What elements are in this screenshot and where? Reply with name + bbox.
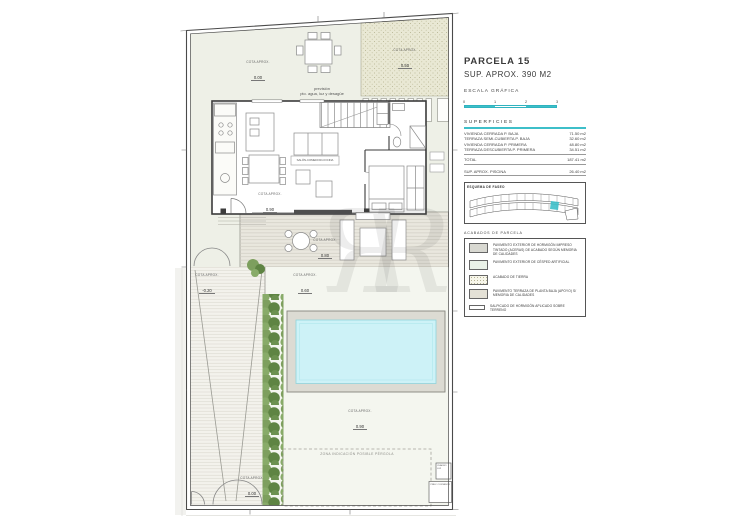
table-row: TERRAZA DESCUBIERTA P. PRIMERA 34.51 m2 <box>464 147 586 152</box>
kitchen-island <box>246 113 274 151</box>
kitchen <box>214 103 237 195</box>
cota-entrance: COTA APROX. 0.00 <box>232 477 272 500</box>
utilities-provision-note: previsión pto. agua, luz y desagüe <box>280 86 364 96</box>
driveway <box>191 267 266 506</box>
agency-watermark: RR <box>322 196 451 311</box>
table-row-pool: SUP. APROX. PISCINA 26.40 m2 <box>464 169 586 174</box>
site-map-title: ESQUEMA DE FASEO <box>467 185 505 189</box>
superficies-table: VIVIENDA CERRADA P. BAJA 71.50 m2 TERRAZ… <box>464 131 586 176</box>
salon-room-label: SALÓN-COMEDOR-COCINA <box>291 158 339 162</box>
superficies-title: SUPERFICIES <box>464 120 586 125</box>
acabados-title: ACABADOS DE PARCELA <box>464 231 586 235</box>
legend-item: PAVIMENTO TERRAZA DE PLANTA BAJA (APOYO)… <box>469 289 581 299</box>
table-row-total: TOTAL 187.41 m2 <box>464 157 586 162</box>
cota-house: COTA APROX. 0.90 <box>250 193 290 216</box>
legend-item: PAVIMENTO EXTERIOR DE CÉSPED ARTIFICIAL <box>469 260 581 270</box>
floor-plan-page: COTA APROX. 0.00 COTA APROX. 0.50 COTA A… <box>0 0 756 528</box>
legend-item: SALPICADO DE HORMIGÓN APLICADO SOBRE TER… <box>469 304 581 312</box>
graphic-scale-bar: 0 1 2 3 <box>464 100 557 110</box>
scale-title: ESCALA GRÁFICA <box>464 89 586 94</box>
superficies-accent-bar <box>464 127 586 130</box>
scale-tick-1: 1 <box>494 100 496 104</box>
site-location-map: ESQUEMA DE FASEO <box>464 182 586 224</box>
scale-tick-3: 3 <box>556 100 558 104</box>
cota-garden-mid: COTA APROX. 0.60 <box>285 274 325 297</box>
swatch-hormigon-impreso <box>469 243 488 253</box>
scale-tick-0: 0 <box>463 100 465 104</box>
cota-lawn-south: COTA APROX. 0.90 <box>340 410 380 433</box>
parcel-area: SUP. APROX. 390 M2 <box>464 70 586 79</box>
swatch-salpicado <box>469 305 485 311</box>
info-panel: PARCELA 15 SUP. APROX. 390 M2 ESCALA GRÁ… <box>464 56 586 317</box>
cota-tierra: COTA APROX. 0.50 <box>385 49 425 72</box>
cota-front-terrain: COTA APROX. 0.00 <box>238 61 278 84</box>
utility-box-bottom-label: PREV. CONTADOR <box>431 484 451 487</box>
finishes-legend: PAVIMENTO EXTERIOR DE HORMIGÓN IMPRESO T… <box>464 238 586 316</box>
cota-driveway: COTA APROX. -0.20 <box>187 274 227 297</box>
legend-item: ACABADO DE TIERRA <box>469 275 581 285</box>
pergola-zone-label: ZONA INDICACIÓN POSIBLE PÉRGOLA <box>285 452 429 456</box>
swatch-cesped-artificial <box>469 260 488 270</box>
pool <box>287 311 445 392</box>
utility-box-top-label: CUADRO LUZ <box>437 465 450 470</box>
highlighted-parcel <box>550 201 559 210</box>
scale-tick-2: 2 <box>525 100 527 104</box>
dining-table <box>243 155 286 185</box>
swatch-pavimento-terraza <box>469 289 488 299</box>
swatch-tierra <box>469 275 488 285</box>
legend-item: PAVIMENTO EXTERIOR DE HORMIGÓN IMPRESO T… <box>469 243 581 255</box>
site-map-drawing <box>465 189 583 223</box>
parcel-title: PARCELA 15 <box>464 56 586 67</box>
